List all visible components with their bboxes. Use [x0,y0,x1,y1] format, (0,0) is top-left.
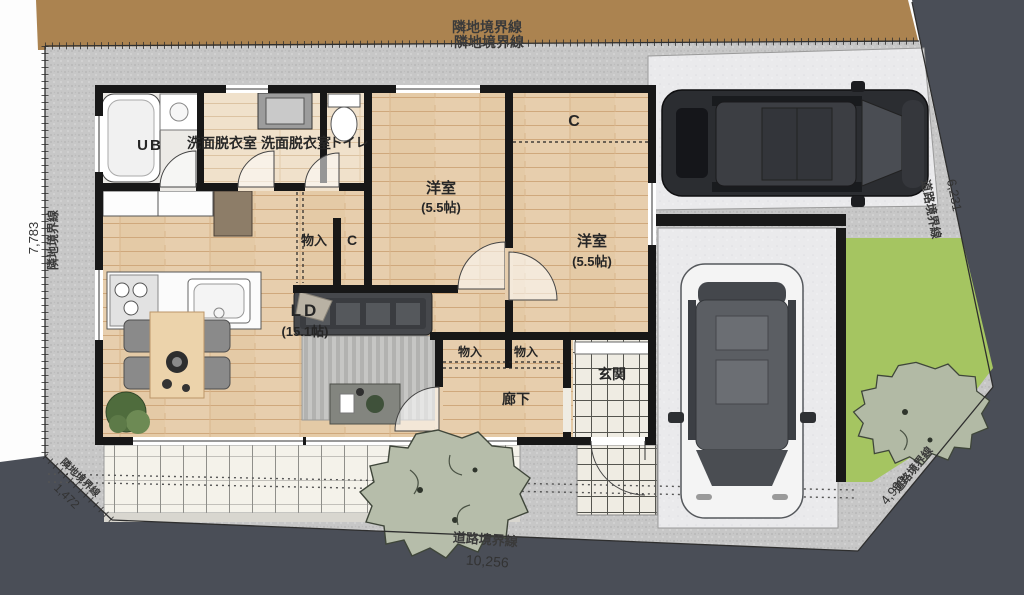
floor-plan-page: 隣地境界線 隣地境界線 隣地境界線 7,783 隣地境界線 1,472 道路境界… [0,0,1024,595]
label-room-toilet: トイレ [329,135,368,150]
car-white-mirror-left [668,412,684,423]
car-dark-mirror-bottom [851,196,865,207]
refrigerator [214,191,252,236]
label-room-bedroom1-size: (5.5帖) [421,200,461,215]
label-neighbor-boundary-top-1: 隣地境界線 [452,19,522,35]
label-closet-mid: C [347,232,357,248]
dim-bottom: 10,256 [465,552,509,571]
label-neighbor-boundary-left: 隣地境界線 [45,210,60,270]
label-room-hall: 廊下 [502,391,530,407]
label-room-bedroom1: 洋室 [426,179,456,197]
label-room-ub: UB [137,137,163,154]
label-neighbor-boundary-top-2: 隣地境界線 [454,34,524,50]
label-room-bedroom2: 洋室 [577,232,607,250]
floor-entry-tile [573,340,653,438]
car-white-mirror-right [800,412,816,423]
bath-counter [160,94,198,130]
car-white [668,264,816,518]
label-closet-top: C [568,113,580,130]
entry-opening [563,388,571,432]
label-storage-hall-1: 物入 [458,344,482,359]
fence-vertical [836,228,846,482]
vanity-sink [258,93,312,129]
floor-plan-canvas: 隣地境界線 隣地境界線 隣地境界線 7,783 隣地境界線 1,472 道路境界… [0,0,1024,595]
label-room-bedroom2-size: (5.5帖) [572,254,612,269]
dim-left: 7,783 [26,222,41,255]
label-room-entry: 玄関 [598,366,626,382]
car-dark-mirror-top [851,81,865,92]
label-room-washroom-b: 洗面脱衣室 [261,135,331,151]
label-room-washroom-a: 洗面脱衣室 [187,135,257,151]
label-room-living: LD [291,301,320,320]
label-storage-hall-2: 物入 [514,344,538,359]
label-storage-mid: 物入 [301,233,327,248]
car-dark [662,81,928,207]
shoe-cabinet [575,342,649,354]
fence-horizontal [648,214,846,226]
label-room-living-size: (15.1帖) [282,324,329,339]
